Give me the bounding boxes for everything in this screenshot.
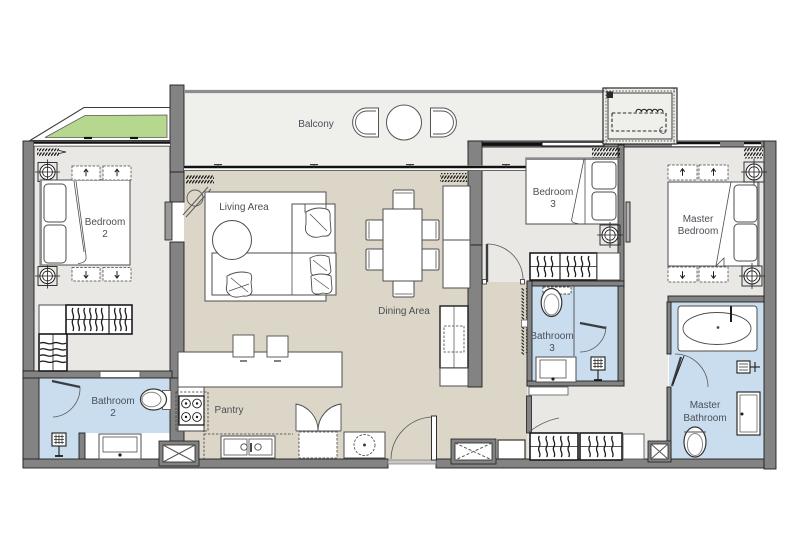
svg-text:2: 2 [102, 229, 108, 240]
svg-text:Master: Master [683, 214, 714, 225]
svg-text:3: 3 [549, 343, 555, 354]
svg-text:Dining Area: Dining Area [378, 306, 430, 317]
svg-text:Bedroom: Bedroom [678, 226, 719, 237]
svg-text:2: 2 [110, 408, 116, 419]
svg-text:Pantry: Pantry [215, 405, 244, 416]
svg-text:Bathroom: Bathroom [683, 413, 726, 424]
svg-text:Bedroom: Bedroom [85, 217, 126, 228]
svg-text:Master: Master [690, 400, 721, 411]
svg-text:Bedroom: Bedroom [533, 187, 574, 198]
svg-text:Balcony: Balcony [298, 119, 334, 130]
svg-text:Living Area: Living Area [219, 202, 269, 213]
svg-text:Bathroom: Bathroom [530, 331, 573, 342]
svg-text:3: 3 [550, 199, 556, 210]
svg-text:Bathroom: Bathroom [91, 396, 134, 407]
